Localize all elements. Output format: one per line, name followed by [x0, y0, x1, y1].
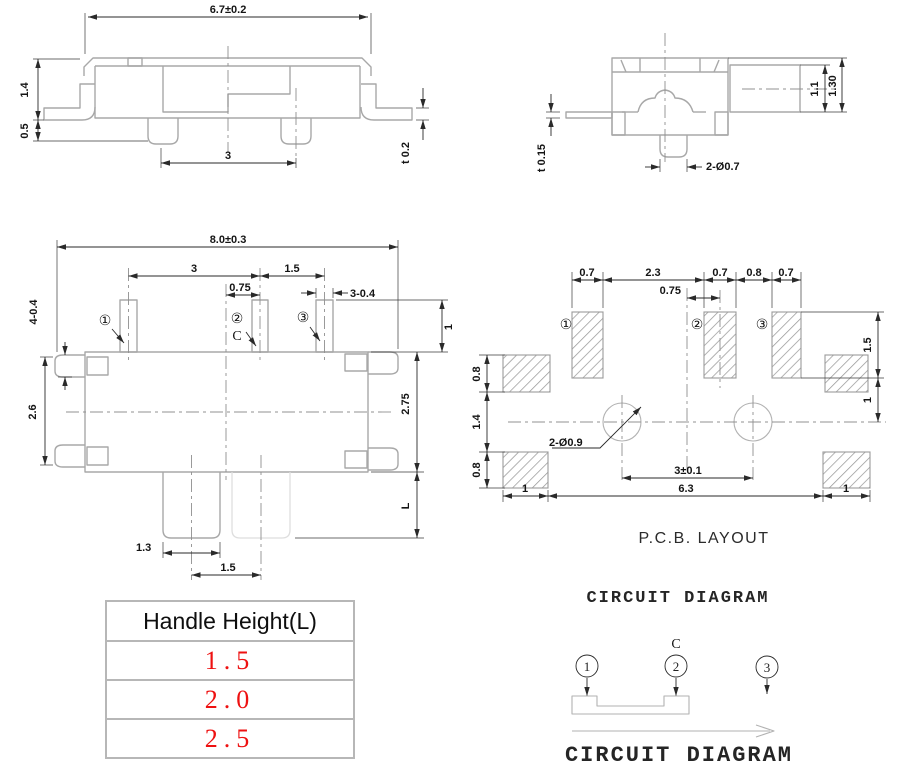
end-total-height-dim: 1.30	[827, 75, 839, 96]
pcb-bottom-pad-height-dim: 0.8	[471, 462, 483, 477]
top-pin-width-dim: 3-0.4	[350, 288, 376, 300]
pcb-pad2-width-dim: 0.7	[712, 267, 727, 279]
top-terminal-1-label: ①	[99, 313, 112, 329]
pcb-pad-height-right-dim: 1.5	[862, 337, 874, 352]
pcb-pad3-width-dim: 0.7	[778, 267, 793, 279]
top-terminal-3-label: ③	[297, 310, 310, 326]
circuit-terminal-1-number: 1	[584, 659, 591, 674]
top-handle-length-dim: L	[400, 502, 412, 509]
side-body-height-dim: 1.4	[19, 81, 31, 97]
top-body-right-dim: 2.75	[400, 393, 412, 414]
table-row: 1.5	[106, 641, 354, 680]
end-view-outline	[566, 58, 800, 157]
pcb-pad-3-label: ③	[756, 317, 769, 333]
pcb-layout: 0.7 2.3 0.7 0.8 0.7 0.75 0.8 1.4 0.8 1.5…	[471, 267, 886, 547]
circuit-terminal-3-number: 3	[764, 660, 771, 675]
top-pin-height-dim: 1	[443, 324, 455, 330]
technical-drawing-sheet: 6.7±0.2 1.4 0.5 3 t 0.2	[0, 0, 900, 779]
table-header-cell: Handle Height(L)	[106, 601, 354, 641]
pcb-pad1-width-dim: 0.7	[579, 267, 594, 279]
pcb-pad-1-label: ①	[560, 317, 573, 333]
circuit-terminal-1: 1	[576, 655, 598, 696]
end-pins-dim: 2-Ø0.7	[706, 161, 740, 173]
top-handle-width-dim: 1.3	[136, 542, 151, 554]
pcb-top-pad-height-dim: 0.8	[471, 366, 483, 381]
circuit-terminal-2: 2	[665, 655, 687, 696]
side-foot-height-dim: 0.5	[19, 123, 31, 138]
side-view: 6.7±0.2 1.4 0.5 3 t 0.2	[19, 4, 429, 168]
end-view: t 0.15 2-Ø0.7 1.1 1.30	[536, 33, 847, 173]
top-view-centerlines	[66, 268, 392, 580]
side-view-centerlines	[228, 46, 296, 158]
circuit-title-top: CIRCUIT DIAGRAM	[586, 589, 769, 608]
pcb-right-gap-dim: 1	[862, 397, 874, 403]
top-travel-dim: 1.5	[220, 562, 235, 574]
top-pitch-1-2-dim: 3	[191, 263, 197, 275]
pcb-hole-pitch-dim: 3±0.1	[674, 465, 701, 477]
top-offset-dim: 0.75	[229, 282, 250, 294]
circuit-terminal-3: 3	[756, 656, 778, 694]
pcb-middle-dim: 1.4	[471, 413, 483, 429]
side-pin-pitch-dim: 3	[225, 150, 231, 162]
pcb-pads	[503, 312, 870, 488]
top-common-label: C	[232, 329, 241, 344]
table-value-cell: 2.0	[106, 680, 354, 719]
top-pitch-2-3-dim: 1.5	[284, 263, 299, 275]
side-thickness-dim: t 0.2	[400, 142, 412, 164]
end-handle-height-dim: 1.1	[809, 81, 821, 96]
circuit-diagram: CIRCUIT DIAGRAM C 1 2 3 CIRCUIT DIAGRAM	[565, 589, 793, 768]
table-row: 2.0	[106, 680, 354, 719]
top-body-left-dim: 2.6	[27, 404, 39, 419]
pcb-layout-title: P.C.B. LAYOUT	[639, 530, 770, 547]
end-thickness-dim: t 0.15	[536, 144, 548, 172]
table-row: 2.5	[106, 719, 354, 758]
pcb-left-pad-width-dim: 1	[522, 483, 528, 495]
table-header-row: Handle Height(L)	[106, 601, 354, 641]
top-width-dim: 8.0±0.3	[210, 234, 247, 246]
circuit-common-label: C	[671, 637, 680, 652]
handle-height-table: Handle Height(L) 1.5 2.0 2.5	[105, 600, 355, 759]
side-view-dimensions	[33, 13, 429, 168]
top-tabs-dim: 4-0.4	[28, 299, 40, 325]
table-value-cell: 2.5	[106, 719, 354, 758]
pcb-holes-label: 2-Ø0.9	[549, 437, 583, 449]
pcb-gap-1-2-dim: 2.3	[645, 267, 660, 279]
circuit-contact-blade	[572, 696, 689, 714]
side-width-dim: 6.7±0.2	[210, 4, 247, 16]
top-terminal-2-label: ②	[231, 311, 244, 327]
top-view-outline	[55, 300, 398, 538]
pcb-gap-2-3-dim: 0.8	[746, 267, 761, 279]
top-view: 8.0±0.3 3 1.5 0.75 3-0.4 4-0.4 2.6 1 2.7…	[27, 234, 455, 580]
table-value-cell: 1.5	[106, 641, 354, 680]
pcb-offset-dim: 0.75	[660, 285, 681, 297]
end-view-dimensions	[546, 58, 847, 172]
circuit-terminal-2-number: 2	[673, 659, 680, 674]
pcb-span-dim: 6.3	[678, 483, 693, 495]
pcb-right-pad-width-dim: 1	[843, 483, 849, 495]
circuit-slide-arrow	[572, 725, 774, 737]
circuit-title-bottom: CIRCUIT DIAGRAM	[565, 743, 793, 768]
pcb-pad-2-label: ②	[691, 317, 704, 333]
